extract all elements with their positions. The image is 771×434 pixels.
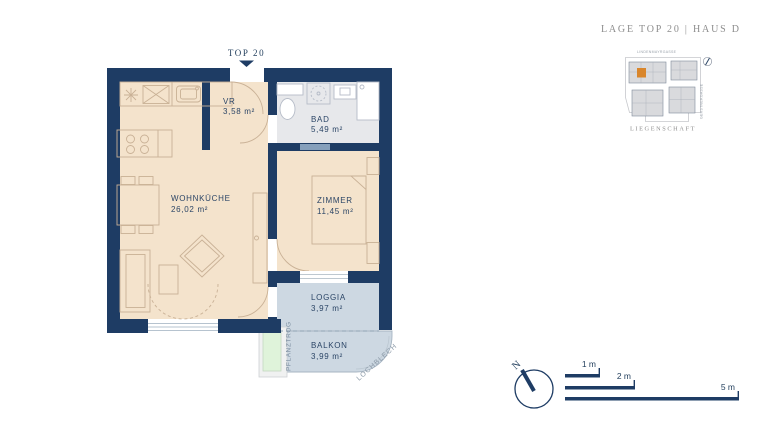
street-label-right: GERSTNERGASSE — [700, 83, 704, 119]
room-vr-name: VR — [223, 97, 236, 106]
scale-bar-1m-label: 1 m — [582, 359, 596, 369]
pflanztrog-label: PFLANZTROG — [286, 321, 293, 371]
floorplan-drawing: TOP 20 VR 3,58 m² BAD 5,49 m² WOHNKÜCHE … — [0, 0, 771, 434]
building-bottom-right — [669, 87, 695, 113]
room-bad-area: 5,49 m² — [311, 125, 343, 134]
unit-highlight — [637, 68, 646, 78]
room-vr-area: 3,58 m² — [223, 107, 255, 116]
planter-box — [263, 332, 281, 371]
wc-icon — [280, 99, 295, 120]
scale-bar-2m-label: 2 m — [617, 371, 631, 381]
washbasin-icon — [334, 85, 356, 99]
site-plan: LAGE TOP 20 | HAUS D LINDENMAYRGASSE GER… — [601, 24, 741, 133]
floor-plan: TOP 20 VR 3,58 m² BAD 5,49 m² WOHNKÜCHE … — [107, 48, 399, 382]
north-compass-needle — [522, 370, 534, 391]
mini-compass-needle — [706, 58, 710, 65]
room-wohnkueche-area: 26,02 m² — [171, 205, 208, 214]
liegenschaft-caption: LIEGENSCHAFT — [630, 126, 696, 133]
building-top-right — [671, 61, 697, 80]
page-title: LAGE TOP 20 | HAUS D — [601, 24, 741, 35]
room-zimmer-name: ZIMMER — [317, 196, 353, 205]
street-label-top: LINDENMAYRGASSE — [637, 50, 677, 54]
scale-bar-5m-label: 5 m — [721, 382, 735, 392]
room-wohnkueche-name: WOHNKÜCHE — [171, 194, 231, 203]
room-bad-name: BAD — [311, 115, 330, 124]
light-symbol-icon — [124, 88, 138, 102]
room-zimmer-area: 11,45 m² — [317, 207, 354, 216]
scale-bar-5m: 5 m — [565, 382, 739, 401]
entrance-arrow-icon — [239, 61, 254, 68]
room-loggia-name: LOGGIA — [311, 293, 346, 302]
zimmer-loggia-window — [300, 271, 348, 283]
floorplan-page: TOP 20 VR 3,58 m² BAD 5,49 m² WOHNKÜCHE … — [0, 0, 771, 434]
room-loggia-area: 3,97 m² — [311, 304, 343, 313]
shaft — [277, 84, 303, 95]
unit-label: TOP 20 — [228, 48, 265, 58]
building-top-left — [629, 62, 666, 83]
room-balkon-name: BALKON — [311, 341, 348, 350]
scale-bar-1m: 1 m — [565, 359, 600, 378]
entrance-opening — [230, 68, 264, 82]
wohnkueche-window — [148, 319, 218, 333]
room-balkon-area: 3,99 m² — [311, 352, 343, 361]
legend: N 1 m 2 m 5 m — [510, 359, 739, 408]
